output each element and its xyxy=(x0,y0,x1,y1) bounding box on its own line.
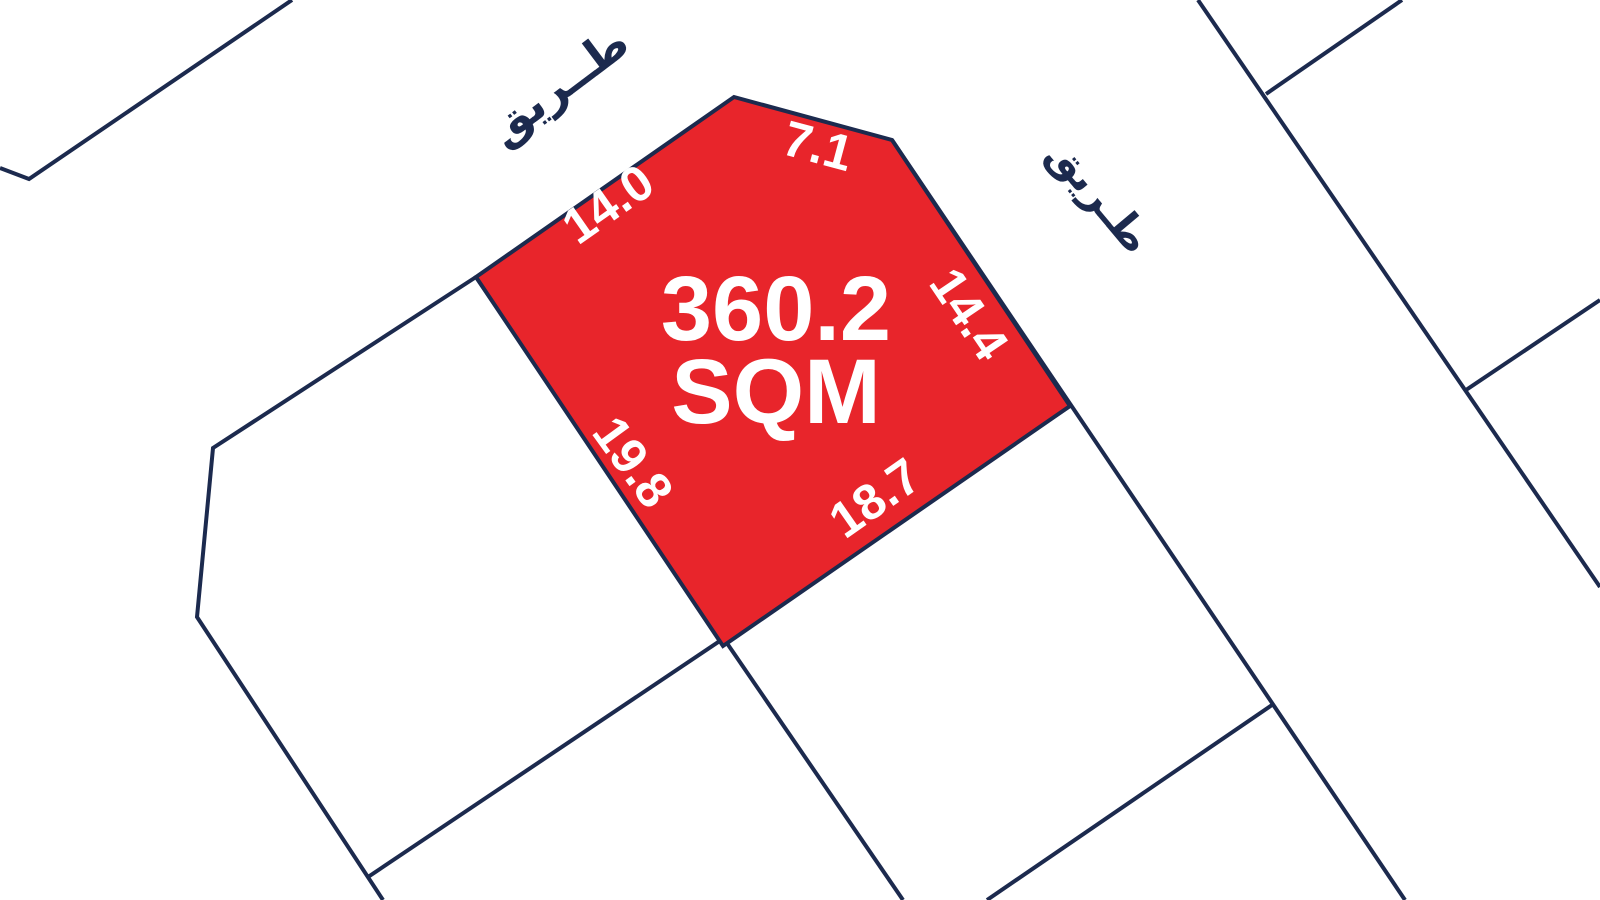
parcel-boundary-line-northeast-street xyxy=(1198,0,1600,587)
parcel-map-canvas: 360.2 SQM 14.0 7.1 14.4 18.7 19.8 طــريق… xyxy=(0,0,1600,900)
road-label-right: طـريق xyxy=(1038,129,1162,264)
plot-area-unit: SQM xyxy=(671,341,881,443)
parcel-boundary-line-top-left-corner xyxy=(0,0,292,179)
parcel-boundary-line-northeast-branch-lower xyxy=(1466,300,1600,390)
parcel-boundary-line-northeast-branch-upper xyxy=(1266,0,1402,94)
road-label-top: طــريق xyxy=(477,15,639,156)
cadastral-map: 360.2 SQM 14.0 7.1 14.4 18.7 19.8 طــريق… xyxy=(0,0,1600,900)
parcel-boundary-line-left-block xyxy=(197,277,476,900)
parcel-boundary-line-southeast-branch xyxy=(987,705,1272,900)
